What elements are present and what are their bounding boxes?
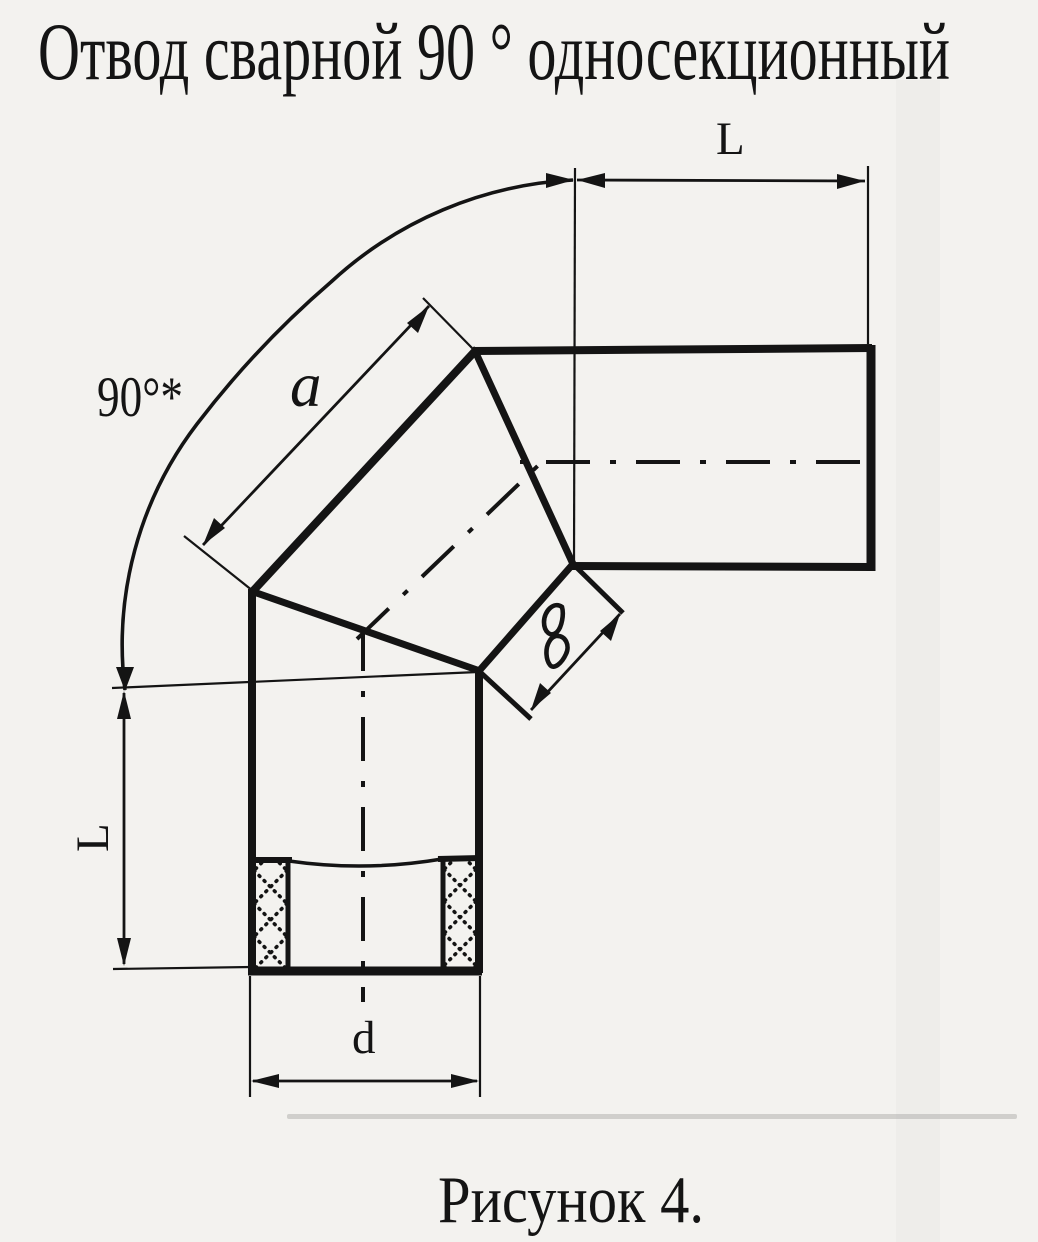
svg-text:Отвод сварной 90 ° односекцион: Отвод сварной 90 ° односекционный	[38, 6, 950, 97]
svg-text:90°*: 90°*	[97, 366, 183, 429]
svg-text:L: L	[716, 113, 745, 165]
svg-text:L: L	[67, 823, 119, 852]
svg-text:d: d	[352, 1012, 376, 1064]
svg-text:Рисунок 4.: Рисунок 4.	[438, 1163, 704, 1237]
svg-text:a: a	[290, 350, 322, 420]
